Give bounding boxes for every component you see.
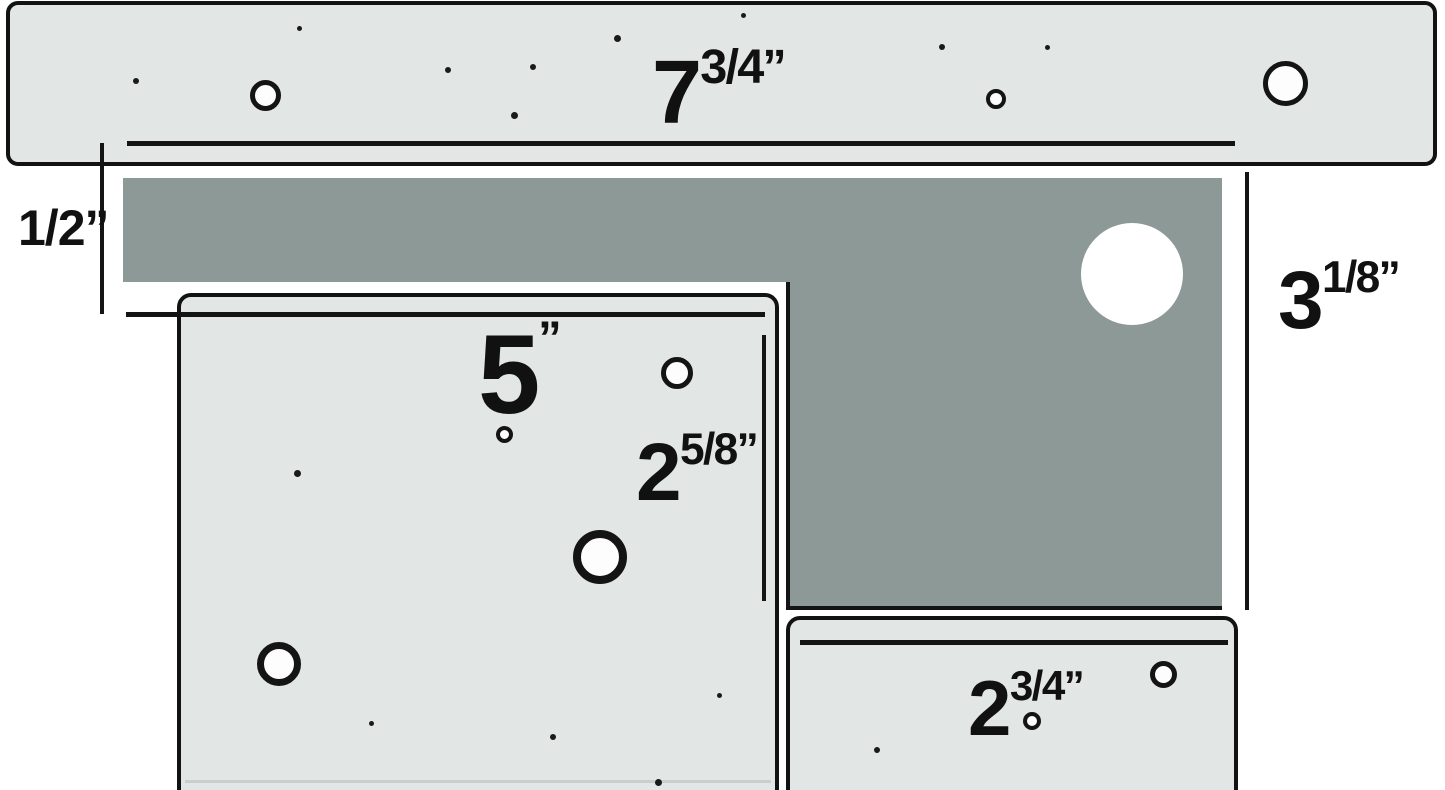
diagram-canvas: 73/4” 1/2” 31/8” 5” 25/8” 23/4” xyxy=(0,0,1445,790)
dimension-value: 7 xyxy=(652,48,700,138)
dimension-label-half-offset: 1/2” xyxy=(18,203,109,253)
dimension-value: 2 xyxy=(968,669,1010,747)
dimension-line-left-width xyxy=(126,312,765,317)
dimension-label-right-height: 31/8” xyxy=(1278,260,1399,342)
dimension-fraction: 3/4” xyxy=(1010,665,1083,707)
dimension-label-bottom-width: 23/4” xyxy=(968,669,1083,747)
dimension-value: 2 xyxy=(636,432,680,514)
dimension-line-bottom-width xyxy=(800,640,1228,645)
dimension-label-left-width: 5” xyxy=(478,319,559,431)
dimension-value: 3 xyxy=(1278,260,1322,342)
dimension-line-right-height xyxy=(1245,172,1249,610)
dimension-value: 1/2” xyxy=(18,203,109,253)
dimension-fraction: 1/8” xyxy=(1322,256,1399,300)
dimension-label-left-height: 25/8” xyxy=(636,432,757,514)
plate-edge-shadow xyxy=(185,780,771,783)
dimension-line-left-height xyxy=(762,335,766,601)
recess-top-strip xyxy=(123,178,1222,282)
dimension-label-top-width: 73/4” xyxy=(652,48,785,138)
dimension-fraction: 5/8” xyxy=(680,428,757,472)
dimension-fraction: 3/4” xyxy=(700,43,785,92)
dimension-fraction: ” xyxy=(538,314,559,361)
dimension-value: 5 xyxy=(478,319,538,431)
recess-right-block xyxy=(786,282,1222,610)
